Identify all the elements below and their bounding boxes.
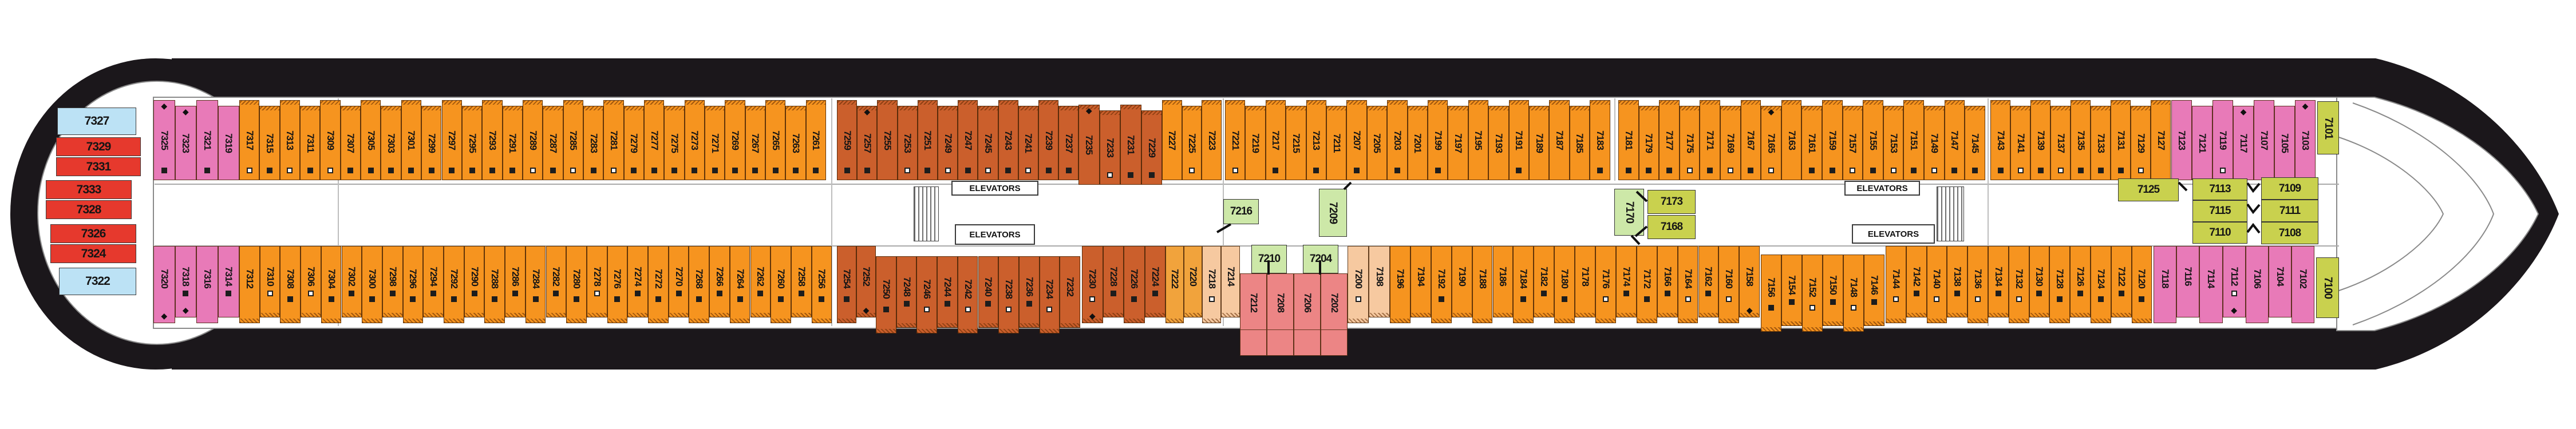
cabin-7194[interactable]: 7194 <box>1411 246 1431 317</box>
cabin-7183[interactable]: 7183 <box>1590 100 1610 180</box>
cabin-7325[interactable]: 7325◆ <box>153 100 175 180</box>
cabin-7284[interactable]: 7284 <box>526 246 546 323</box>
filled-square-icon <box>737 296 743 302</box>
cabin-7168[interactable]: 7168 <box>1647 215 1696 239</box>
cabin-7129[interactable]: 7129 <box>2131 106 2151 180</box>
cabin-7102[interactable]: 7102 <box>2291 246 2314 323</box>
cabin-number: 7189 <box>1534 133 1545 153</box>
cabin-7286[interactable]: 7286 <box>505 246 526 317</box>
cabin-7271[interactable]: 7271 <box>705 106 725 180</box>
deck-plan: ELEVATORSELEVATORSELEVATORSELEVATORS 732… <box>0 0 2576 429</box>
cabin-7312[interactable]: 7312 <box>239 246 260 323</box>
cabin-7322[interactable]: 7322 <box>59 268 136 295</box>
cabin-number: 7214 <box>1225 267 1236 286</box>
cabin-7132[interactable]: 7132 <box>2009 246 2029 323</box>
cabin-number: 7135 <box>2075 130 2087 150</box>
cabin-7149[interactable]: 7149 <box>1924 106 1945 180</box>
cabin-7303[interactable]: 7303 <box>381 106 401 180</box>
cabin-7118[interactable]: 7118 <box>2154 246 2176 323</box>
cabin-7159[interactable]: 7159 <box>1822 100 1843 180</box>
cabin-7191[interactable]: 7191 <box>1509 100 1529 180</box>
cabin-7285[interactable]: 7285 <box>563 100 583 180</box>
cabin-7217[interactable]: 7217 <box>1266 100 1286 180</box>
filled-square-icon <box>368 168 374 173</box>
cabin-number: 7284 <box>530 269 542 288</box>
cabin-7196[interactable]: 7196 <box>1390 246 1411 323</box>
cabin-7162[interactable]: 7162 <box>1698 246 1719 317</box>
cabin-7206[interactable]: 7206 <box>1294 273 1321 356</box>
cabin-7253[interactable]: 7253 <box>898 106 918 180</box>
cabin-7318[interactable]: 7318◆ <box>175 246 197 317</box>
cabin-7319[interactable]: 7319 <box>218 106 240 180</box>
cabin-7204[interactable]: 7204 <box>1303 245 1338 273</box>
cabin-7252[interactable]: 7252◆ <box>856 246 876 317</box>
cabin-7198[interactable]: 7198 <box>1369 246 1390 317</box>
cabin-7154[interactable]: 7154 <box>1781 255 1802 326</box>
cabin-7184[interactable]: 7184 <box>1513 246 1534 323</box>
cabin-7268[interactable]: 7268 <box>689 246 709 323</box>
elevators-label[interactable]: ELEVATORS <box>1852 224 1935 244</box>
open-square-icon <box>1893 296 1899 302</box>
cabin-7203[interactable]: 7203 <box>1387 100 1407 180</box>
cabin-7211[interactable]: 7211 <box>1326 106 1346 180</box>
cabin-7178[interactable]: 7178 <box>1575 246 1595 317</box>
cabin-7299[interactable]: 7299 <box>421 106 441 180</box>
cabin-7139[interactable]: 7139 <box>2030 100 2050 180</box>
cabin-7225[interactable]: 7225 <box>1182 106 1202 180</box>
cabin-7263[interactable]: 7263 <box>785 106 805 180</box>
cabin-7297[interactable]: 7297 <box>442 100 462 180</box>
cabin-number: 7308 <box>285 269 296 288</box>
cabin-7273[interactable]: 7273 <box>685 100 705 180</box>
cabin-number: 7216 <box>1230 205 1252 218</box>
cabin-7261[interactable]: 7261 <box>806 100 826 180</box>
cabin-7124[interactable]: 7124 <box>2091 246 2111 323</box>
filled-square-icon <box>2098 296 2104 302</box>
cabin-7181[interactable]: 7181 <box>1618 100 1639 180</box>
cabin-7292[interactable]: 7292 <box>444 246 464 323</box>
filled-square-icon <box>2078 168 2084 173</box>
cabin-7242[interactable]: 7242 <box>958 256 978 333</box>
cabin-7133[interactable]: 7133 <box>2091 106 2111 180</box>
cabin-number: 7231 <box>1125 135 1136 154</box>
cabin-7328[interactable]: 7328 <box>46 200 132 219</box>
cabin-number: 7245 <box>982 133 994 153</box>
cabin-7266[interactable]: 7266 <box>709 246 730 317</box>
cabin-7127[interactable]: 7127 <box>2151 100 2171 180</box>
cabin-7276[interactable]: 7276 <box>607 246 628 323</box>
cabin-7307[interactable]: 7307 <box>341 106 361 180</box>
cabin-7165[interactable]: 7165◆ <box>1761 106 1781 180</box>
cabin-7189[interactable]: 7189 <box>1529 106 1549 180</box>
cabin-7199[interactable]: 7199 <box>1428 100 1448 180</box>
cabin-7240[interactable]: 7240 <box>978 256 999 328</box>
cabin-number: 7143 <box>1995 130 2006 150</box>
cabin-7153[interactable]: 7153 <box>1883 106 1904 180</box>
cabin-7222[interactable]: 7222 <box>1165 246 1184 323</box>
filled-square-icon <box>635 291 641 296</box>
cabin-7182[interactable]: 7182 <box>1534 246 1554 317</box>
cabin-7298[interactable]: 7298 <box>382 246 403 317</box>
open-square-icon <box>1046 307 1052 312</box>
cabin-number: 7247 <box>962 130 974 150</box>
cabin-7187[interactable]: 7187 <box>1549 100 1569 180</box>
filled-square-icon <box>410 296 416 302</box>
cabin-number: 7326 <box>81 227 106 241</box>
cabin-number: 7325 <box>159 130 170 150</box>
cabin-7213[interactable]: 7213 <box>1306 100 1326 180</box>
cabin-7179[interactable]: 7179 <box>1639 106 1660 180</box>
cabin-7278[interactable]: 7278 <box>587 246 607 317</box>
cabin-7155[interactable]: 7155 <box>1863 100 1883 180</box>
cabin-7180[interactable]: 7180 <box>1554 246 1575 323</box>
cabin-7311[interactable]: 7311 <box>300 106 320 180</box>
cabin-7291[interactable]: 7291 <box>503 106 523 180</box>
filled-square-icon <box>1046 168 1052 173</box>
cabin-7167[interactable]: 7167 <box>1741 100 1761 180</box>
cabin-7117[interactable]: 7117◆ <box>2233 106 2254 180</box>
cabin-7248[interactable]: 7248 <box>896 256 917 328</box>
cabin-7210[interactable]: 7210 <box>1251 245 1287 273</box>
cabin-7316[interactable]: 7316 <box>196 246 218 323</box>
cabin-7137[interactable]: 7137 <box>2050 106 2071 180</box>
cabin-7279[interactable]: 7279 <box>624 106 644 180</box>
cabin-7244[interactable]: 7244 <box>937 256 958 328</box>
cabin-7164[interactable]: 7164 <box>1678 246 1698 323</box>
cabin-7306[interactable]: 7306 <box>301 246 321 317</box>
cabin-7232[interactable]: 7232 <box>1060 256 1080 328</box>
cabin-7192[interactable]: 7192 <box>1431 246 1452 323</box>
cabin-7315[interactable]: 7315 <box>259 106 279 180</box>
elevators-label[interactable]: ELEVATORS <box>951 181 1038 196</box>
cabin-7169[interactable]: 7169 <box>1720 106 1741 180</box>
cabin-7323[interactable]: 7323◆ <box>175 106 197 180</box>
cabin-7170[interactable]: 7170 <box>1614 189 1644 236</box>
elevators-label[interactable]: ELEVATORS <box>1844 181 1920 196</box>
cabin-7115[interactable]: 7115 <box>2192 200 2247 222</box>
cabin-7226[interactable]: 7226 <box>1124 246 1145 323</box>
open-square-icon <box>965 307 971 312</box>
cabin-7255[interactable]: 7255 <box>877 100 897 180</box>
cabin-7193[interactable]: 7193 <box>1488 106 1508 180</box>
cabin-7171[interactable]: 7171 <box>1700 100 1720 180</box>
cabin-7250[interactable]: 7250 <box>876 256 896 333</box>
cabin-number: 7131 <box>2115 130 2127 150</box>
cabin-number: 7117 <box>2238 134 2249 153</box>
filled-square-icon <box>204 168 210 173</box>
cabin-7100[interactable]: 7100 <box>2316 257 2339 318</box>
cabin-number: 7286 <box>509 267 521 286</box>
cabin-7305[interactable]: 7305 <box>361 100 381 180</box>
cabin-7112[interactable]: 7112◆ <box>2223 246 2246 317</box>
cabin-7302[interactable]: 7302 <box>342 246 362 317</box>
cabin-7208[interactable]: 7208 <box>1267 273 1294 356</box>
filled-square-icon <box>1911 168 1917 173</box>
cabin-7270[interactable]: 7270 <box>669 246 689 317</box>
cabin-7331[interactable]: 7331 <box>56 157 141 176</box>
cabin-7166[interactable]: 7166 <box>1657 246 1678 317</box>
cabin-7174[interactable]: 7174 <box>1616 246 1637 317</box>
cabin-7228[interactable]: 7228 <box>1103 246 1124 317</box>
cabin-7321[interactable]: 7321 <box>196 100 218 180</box>
cabin-7103[interactable]: 7103◆ <box>2295 100 2316 180</box>
cabin-7245[interactable]: 7245 <box>978 106 998 180</box>
cabin-number: 7219 <box>1250 133 1261 153</box>
cabin-7216[interactable]: 7216 <box>1223 199 1259 224</box>
cabin-7120[interactable]: 7120 <box>2132 246 2152 323</box>
cabin-7131[interactable]: 7131 <box>2111 100 2131 180</box>
cabin-7109[interactable]: 7109 <box>2261 177 2318 200</box>
cabin-7233[interactable]: 7233 <box>1100 110 1121 185</box>
cabin-7126[interactable]: 7126 <box>2070 246 2091 317</box>
cabin-7158[interactable]: 7158◆ <box>1739 246 1760 317</box>
cabin-7294[interactable]: 7294 <box>423 246 444 317</box>
diamond-icon: ◆ <box>1086 106 1092 114</box>
cabin-7218[interactable]: 7218 <box>1202 246 1221 323</box>
cabin-7282[interactable]: 7282 <box>546 246 567 317</box>
cabin-7293[interactable]: 7293 <box>482 100 502 180</box>
cabin-7256[interactable]: 7256 <box>812 246 832 323</box>
cabin-7136[interactable]: 7136 <box>1967 246 1988 323</box>
cabin-7142[interactable]: 7142 <box>1906 246 1927 317</box>
cabin-7146[interactable]: 7146 <box>1864 255 1884 326</box>
cabin-number: 7239 <box>1043 130 1054 150</box>
cabin-7281[interactable]: 7281 <box>603 100 623 180</box>
cabin-7123[interactable]: 7123 <box>2171 100 2192 180</box>
cabin-7280[interactable]: 7280 <box>566 246 587 323</box>
cabin-7145[interactable]: 7145 <box>1965 106 1985 180</box>
cabin-7113[interactable]: 7113 <box>2192 178 2247 200</box>
cabin-7105[interactable]: 7105 <box>2274 106 2295 180</box>
cabin-7309[interactable]: 7309 <box>320 100 340 180</box>
cabin-7201[interactable]: 7201 <box>1408 106 1428 180</box>
cabin-7320[interactable]: 7320◆ <box>153 246 175 323</box>
cabin-number: 7268 <box>693 269 705 288</box>
cabin-7116[interactable]: 7116 <box>2176 246 2199 317</box>
cabin-number: 7311 <box>305 134 316 153</box>
cabin-7172[interactable]: 7172 <box>1637 246 1657 323</box>
cabin-number: 7227 <box>1166 130 1178 150</box>
cabin-7223[interactable]: 7223 <box>1202 100 1222 180</box>
cabin-7134[interactable]: 7134 <box>1988 246 2009 317</box>
cabin-7275[interactable]: 7275 <box>664 106 684 180</box>
cabin-7215[interactable]: 7215 <box>1286 106 1306 180</box>
filled-square-icon <box>369 296 375 302</box>
cabin-7188[interactable]: 7188 <box>1472 246 1493 323</box>
cabin-7227[interactable]: 7227 <box>1162 100 1182 180</box>
cabin-7138[interactable]: 7138 <box>1947 246 1967 317</box>
cabin-number: 7298 <box>387 267 398 286</box>
cabin-7101[interactable]: 7101 <box>2317 101 2339 154</box>
cabin-7111[interactable]: 7111 <box>2261 200 2318 222</box>
cabin-number: 7229 <box>1146 138 1157 157</box>
cabin-7114[interactable]: 7114 <box>2199 246 2222 323</box>
cabin-7237[interactable]: 7237 <box>1058 106 1078 180</box>
cabin-7144[interactable]: 7144 <box>1886 246 1906 323</box>
cabin-7128[interactable]: 7128 <box>2049 246 2070 323</box>
cabin-7207[interactable]: 7207 <box>1346 100 1366 180</box>
cabin-7314[interactable]: 7314 <box>218 246 240 317</box>
cabin-7257[interactable]: 7257◆ <box>857 106 877 180</box>
cabin-number: 7266 <box>714 267 725 286</box>
cabin-7313[interactable]: 7313 <box>280 100 300 180</box>
filled-square-icon <box>883 307 889 312</box>
cabin-7195[interactable]: 7195 <box>1468 100 1488 180</box>
cabin-7214[interactable]: 7214 <box>1221 246 1240 317</box>
cabin-7151[interactable]: 7151 <box>1903 100 1924 180</box>
cabin-7249[interactable]: 7249 <box>938 106 958 180</box>
cabin-7296[interactable]: 7296 <box>403 246 424 323</box>
cabin-7175[interactable]: 7175 <box>1680 106 1700 180</box>
filled-square-icon <box>732 168 738 173</box>
cabin-7212[interactable]: 7212 <box>1240 273 1267 356</box>
cabin-number: 7119 <box>2217 131 2229 150</box>
cabin-7308[interactable]: 7308 <box>280 246 301 323</box>
cabin-7130[interactable]: 7130 <box>2029 246 2050 317</box>
cabin-7160[interactable]: 7160 <box>1718 246 1739 323</box>
cabin-number: 7295 <box>467 133 478 153</box>
cabin-7264[interactable]: 7264 <box>730 246 750 323</box>
cabin-7317[interactable]: 7317 <box>239 100 259 180</box>
open-square-icon <box>1850 168 1855 173</box>
cabin-7295[interactable]: 7295 <box>462 106 482 180</box>
cabin-7157[interactable]: 7157 <box>1843 106 1863 180</box>
cabin-7156[interactable]: 7156 <box>1761 255 1781 332</box>
cabin-7274[interactable]: 7274 <box>627 246 648 317</box>
cabin-7173[interactable]: 7173 <box>1647 190 1696 214</box>
cabin-7147[interactable]: 7147 <box>1945 100 1965 180</box>
cabin-7277[interactable]: 7277 <box>644 100 664 180</box>
cabin-7200[interactable]: 7200 <box>1348 246 1369 323</box>
cabin-7238[interactable]: 7238 <box>998 256 1019 333</box>
cabin-7326[interactable]: 7326 <box>50 224 136 243</box>
cabin-7262[interactable]: 7262 <box>750 246 771 317</box>
cabin-7254[interactable]: 7254 <box>837 246 856 323</box>
cabin-7235[interactable]: 7235◆ <box>1078 105 1100 185</box>
cabin-number: 7224 <box>1149 267 1161 286</box>
filled-square-icon <box>1809 168 1815 173</box>
cabin-7246[interactable]: 7246 <box>916 256 937 333</box>
cabin-7220[interactable]: 7220 <box>1184 246 1202 317</box>
cabin-7329[interactable]: 7329 <box>56 137 141 156</box>
cabin-7239[interactable]: 7239 <box>1038 100 1058 180</box>
cabin-7177[interactable]: 7177 <box>1659 100 1680 180</box>
cabin-7224[interactable]: 7224 <box>1145 246 1166 317</box>
cabin-7140[interactable]: 7140 <box>1927 246 1947 323</box>
cabin-7135[interactable]: 7135 <box>2071 100 2091 180</box>
cabin-7324[interactable]: 7324 <box>50 244 136 263</box>
cabin-7152[interactable]: 7152 <box>1802 255 1823 332</box>
cabin-number: 7282 <box>550 267 562 286</box>
cabin-number: 7173 <box>1661 196 1682 208</box>
cabin-7197[interactable]: 7197 <box>1448 106 1468 180</box>
cabin-7287[interactable]: 7287 <box>543 106 563 180</box>
cabin-7289[interactable]: 7289 <box>523 100 543 180</box>
cabin-number: 7238 <box>1003 279 1014 299</box>
cabin-7148[interactable]: 7148 <box>1843 255 1864 332</box>
cabin-7209[interactable]: 7209 <box>1319 189 1347 237</box>
cabin-7107[interactable]: 7107 <box>2254 100 2274 180</box>
cabin-number: 7267 <box>749 133 761 153</box>
cabin-7106[interactable]: 7106 <box>2246 246 2269 323</box>
cabin-7121[interactable]: 7121 <box>2192 106 2212 180</box>
cabin-7272[interactable]: 7272 <box>648 246 669 323</box>
cabin-7301[interactable]: 7301 <box>401 100 421 180</box>
cabin-7125[interactable]: 7125 <box>2118 178 2179 201</box>
cabin-7290[interactable]: 7290 <box>464 246 485 317</box>
cabin-7141[interactable]: 7141 <box>2010 106 2030 180</box>
cabin-number: 7170 <box>1623 201 1635 223</box>
elevators-label[interactable]: ELEVATORS <box>955 224 1035 245</box>
cabin-7205[interactable]: 7205 <box>1367 106 1387 180</box>
cabin-7104[interactable]: 7104 <box>2269 246 2291 317</box>
cabin-7243[interactable]: 7243 <box>998 100 1018 180</box>
filled-square-icon <box>429 168 434 173</box>
cabin-7241[interactable]: 7241 <box>1018 106 1038 180</box>
cabin-7283[interactable]: 7283 <box>583 106 603 180</box>
cabin-7327[interactable]: 7327 <box>57 108 136 135</box>
cabin-7251[interactable]: 7251 <box>918 100 938 180</box>
cabin-7186[interactable]: 7186 <box>1493 246 1514 317</box>
cabin-7163[interactable]: 7163 <box>1781 100 1802 180</box>
cabin-7333[interactable]: 7333 <box>46 180 132 199</box>
cabin-7234[interactable]: 7234 <box>1040 256 1060 333</box>
cabin-7247[interactable]: 7247 <box>958 100 978 180</box>
cabin-7150[interactable]: 7150 <box>1823 255 1843 326</box>
filled-square-icon <box>1128 172 1133 178</box>
cabin-7258[interactable]: 7258 <box>791 246 812 317</box>
open-square-icon <box>1685 296 1691 302</box>
cabin-7219[interactable]: 7219 <box>1245 106 1265 180</box>
cabin-number: 7181 <box>1623 130 1634 150</box>
cabin-7119[interactable]: 7119 <box>2212 100 2233 180</box>
cabin-7304[interactable]: 7304 <box>321 246 342 323</box>
cabin-number: 7151 <box>1908 130 1919 150</box>
cabin-7176[interactable]: 7176 <box>1595 246 1616 323</box>
cabin-7300[interactable]: 7300 <box>362 246 382 323</box>
cabin-7260[interactable]: 7260 <box>771 246 791 323</box>
cabin-7122[interactable]: 7122 <box>2111 246 2132 317</box>
cabin-7108[interactable]: 7108 <box>2261 222 2318 244</box>
cabin-7236[interactable]: 7236 <box>1019 256 1040 328</box>
cabin-7267[interactable]: 7267 <box>745 106 765 180</box>
cabin-number: 7108 <box>2279 227 2301 240</box>
filled-square-icon <box>712 168 718 173</box>
diamond-icon: ◆ <box>2302 102 2309 110</box>
cabin-7221[interactable]: 7221 <box>1225 100 1245 180</box>
cabin-number: 7270 <box>673 267 685 286</box>
cabin-number: 7201 <box>1412 133 1423 153</box>
cabin-7185[interactable]: 7185 <box>1570 106 1590 180</box>
cabin-7231[interactable]: 7231 <box>1120 105 1141 185</box>
cabin-7190[interactable]: 7190 <box>1452 246 1472 317</box>
cabin-7161[interactable]: 7161 <box>1801 106 1822 180</box>
cabin-7265[interactable]: 7265 <box>765 100 785 180</box>
cabin-7110[interactable]: 7110 <box>2192 222 2247 244</box>
cabin-7143[interactable]: 7143 <box>1990 100 2010 180</box>
cabin-number: 7162 <box>1702 267 1714 286</box>
cabin-number: 7209 <box>1327 202 1340 224</box>
cabin-7229[interactable]: 7229 <box>1141 110 1163 185</box>
cabin-number: 7243 <box>1002 130 1014 150</box>
cabin-7230[interactable]: 7230◆ <box>1082 246 1103 323</box>
cabin-7310[interactable]: 7310 <box>260 246 280 317</box>
cabin-7259[interactable]: 7259 <box>837 100 857 180</box>
cabin-7288[interactable]: 7288 <box>484 246 505 323</box>
cabin-7202[interactable]: 7202 <box>1321 273 1348 356</box>
cabin-number: 7305 <box>365 130 377 150</box>
cabin-7269[interactable]: 7269 <box>725 100 745 180</box>
